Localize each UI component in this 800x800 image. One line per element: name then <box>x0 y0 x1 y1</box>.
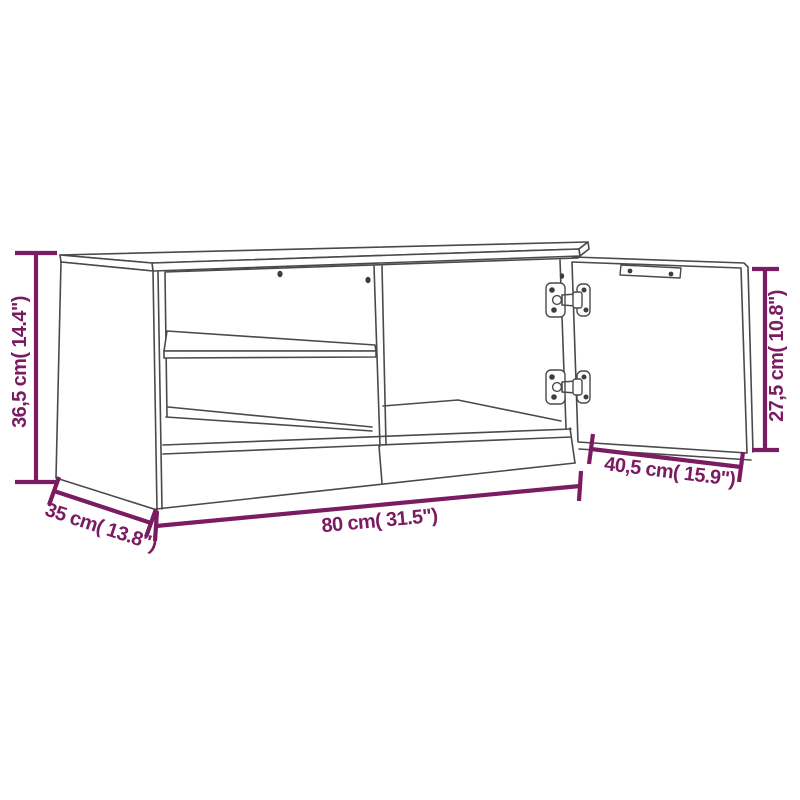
bottom-front-edge <box>156 463 575 509</box>
shelf-pin-holes <box>277 271 564 283</box>
cabinet-drawing <box>56 242 589 510</box>
dimension-label-height: 36,5 cm( 14.4") <box>9 296 31 428</box>
left-panel-inner-edge <box>158 272 162 509</box>
apron-second-line <box>163 437 571 454</box>
screw-hole-icon <box>277 271 282 277</box>
dimension-tick <box>579 471 581 501</box>
door-panel <box>572 262 747 453</box>
dimension-height: 36,5 cm( 14.4") <box>9 253 57 482</box>
divider-front-right <box>382 266 386 445</box>
door-handle-icon <box>620 265 681 278</box>
dimension-width: 80 cm( 31.5") <box>155 471 581 541</box>
hinge-icon <box>546 283 590 317</box>
floor-right-edges <box>383 400 561 421</box>
diagram-canvas: 36,5 cm( 14.4") 35 cm( 13.8") 80 cm( 31.… <box>0 0 800 800</box>
left-side-panel <box>56 262 157 510</box>
screw-hole-icon <box>560 273 564 279</box>
bottom-right-corner-edge <box>570 428 575 463</box>
shelf-surface <box>164 331 376 351</box>
door-open <box>546 257 753 460</box>
hinge-icon <box>546 370 590 404</box>
screw-hole-icon <box>365 277 370 283</box>
dimension-label-door-height: 27,5 cm( 10.8") <box>766 290 788 422</box>
apron-middle-seam <box>379 446 382 483</box>
product-dimension-diagram: 36,5 cm( 14.4") 35 cm( 13.8") 80 cm( 31.… <box>0 0 800 800</box>
dimension-door-height: 27,5 cm( 10.8") <box>752 269 788 450</box>
dimension-tick <box>739 452 743 482</box>
dimension-tick <box>155 511 157 541</box>
shelf-front-edge <box>164 351 376 358</box>
